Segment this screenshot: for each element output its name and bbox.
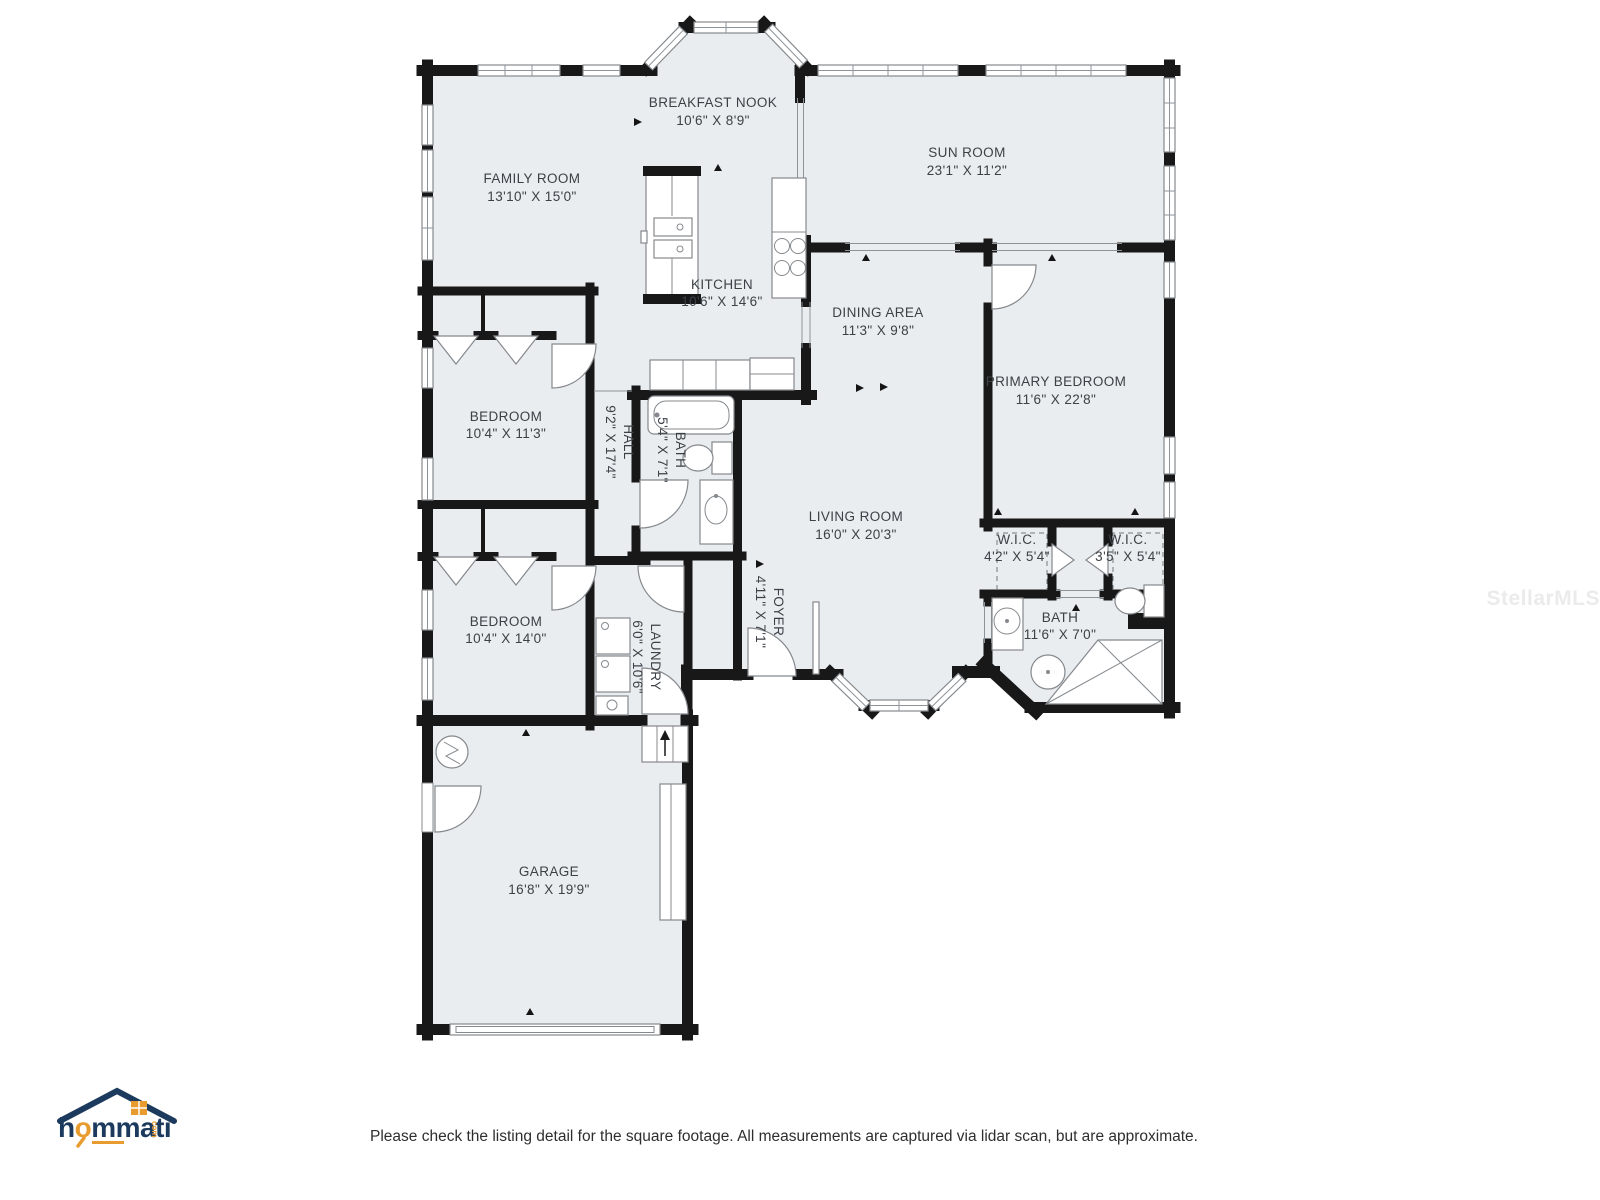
window	[422, 458, 433, 500]
workbench	[660, 784, 686, 920]
side-door-opening	[422, 783, 433, 832]
island-end-wall	[643, 166, 701, 176]
water-heater	[436, 736, 468, 768]
window	[422, 150, 433, 192]
bay-window	[694, 22, 758, 33]
hall-vanity	[700, 480, 733, 544]
sink-basin	[654, 218, 692, 236]
floorplan-svg: FAMILY ROOM13'10" X 15'0" BREAKFAST NOOK…	[0, 0, 1600, 1200]
stellar-mls-watermark: StellarMLS	[1486, 587, 1600, 610]
pedestal-sink	[1031, 655, 1065, 689]
stove-counter	[772, 178, 806, 298]
sink-basin	[654, 240, 692, 258]
window	[1164, 482, 1175, 518]
window	[422, 105, 433, 145]
window	[422, 197, 433, 260]
window	[818, 65, 958, 76]
window	[1164, 166, 1175, 240]
window	[583, 65, 620, 76]
window	[1164, 78, 1175, 152]
faucet	[641, 231, 647, 243]
svg-text:com: com	[150, 1121, 159, 1137]
washer	[596, 618, 630, 654]
garage-door	[450, 1024, 660, 1035]
bay-window	[870, 700, 928, 711]
disclaimer: Please check the listing detail for the …	[370, 1128, 1198, 1145]
window	[422, 590, 433, 630]
window	[478, 65, 560, 76]
logo-underline	[92, 1141, 124, 1144]
window	[1164, 437, 1175, 474]
window	[422, 658, 433, 700]
utility-sink	[596, 696, 628, 715]
garage-steps	[642, 726, 688, 762]
hommati-logo: hommati com	[58, 1091, 174, 1146]
base-cabinets	[650, 358, 794, 390]
foyer-railing	[813, 602, 819, 674]
window	[422, 348, 433, 388]
window	[986, 65, 1126, 76]
primary-vanity	[992, 598, 1023, 650]
dryer	[596, 656, 630, 692]
window	[1164, 262, 1175, 298]
floorplan-page: FAMILY ROOM13'10" X 15'0" BREAKFAST NOOK…	[0, 0, 1600, 1200]
